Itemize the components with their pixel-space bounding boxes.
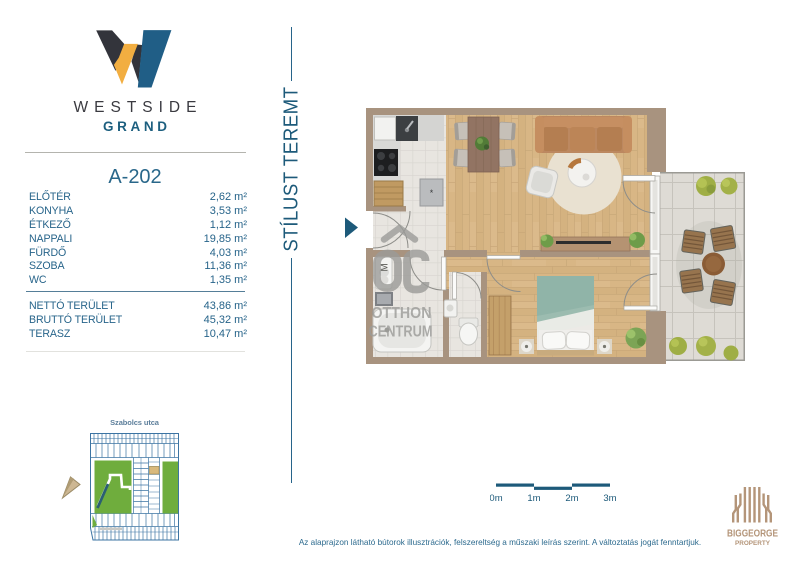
svg-text:OTTHON: OTTHON <box>372 305 432 322</box>
svg-text:PROPERTY: PROPERTY <box>735 540 770 547</box>
svg-text:2m: 2m <box>565 493 578 504</box>
svg-text:*: * <box>430 188 434 198</box>
svg-text:BIGGEORGE: BIGGEORGE <box>727 529 778 540</box>
svg-text:M: M <box>380 263 391 271</box>
svg-text:0m: 0m <box>490 493 503 504</box>
svg-text:3m: 3m <box>603 493 616 504</box>
svg-text:1m: 1m <box>527 493 540 504</box>
svg-text:CENTRUM: CENTRUM <box>369 324 433 341</box>
